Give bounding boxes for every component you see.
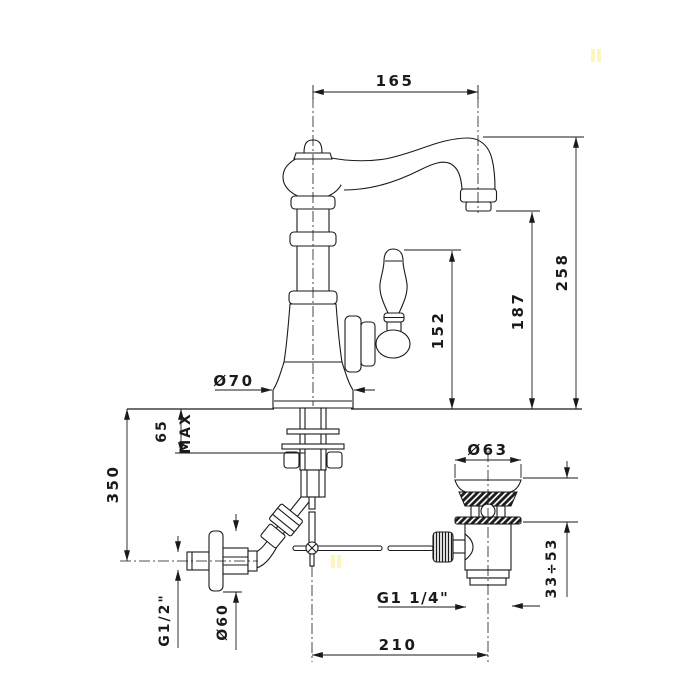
dim-label-258: 258 (553, 253, 571, 292)
dim-label-g114: G1 1/4" (377, 589, 450, 607)
dim-spout-reach: 165 (313, 72, 478, 99)
dim-clamp-range: 33÷53 (523, 461, 578, 598)
dim-label-65: 65 (154, 419, 170, 442)
aerator (461, 189, 497, 211)
dim-label-d70: Ø70 (213, 372, 254, 390)
mounting-hardware (282, 408, 344, 497)
dim-label-350: 350 (104, 465, 122, 504)
mounting-washer (282, 444, 344, 449)
mounting-nut (284, 452, 299, 468)
dim-spout-outlet-height: 187 (496, 211, 540, 409)
dim-label-210: 210 (379, 636, 418, 654)
hose-coupler (301, 470, 325, 497)
technical-drawing: 165 258 187 152 Ø70 65 MAX 350 G1 (0, 0, 700, 700)
dim-waste-offset: 210 (312, 636, 488, 655)
pop-up-rod (293, 497, 433, 566)
handle-ball (376, 330, 410, 358)
dim-label-g12: G1/2" (157, 593, 173, 646)
dim-total-height: 258 (483, 137, 584, 409)
dim-label-d60: Ø60 (215, 603, 231, 640)
dim-label-3353: 33÷53 (544, 538, 560, 599)
dim-label-187: 187 (509, 292, 527, 331)
horizontal-rod (388, 546, 433, 551)
faucet-dimension-diagram: 165 258 187 152 Ø70 65 MAX 350 G1 (0, 0, 700, 700)
pop-up-waste (433, 480, 521, 585)
dim-supply-drop: 350 (104, 409, 127, 561)
mounting-washer (287, 429, 339, 434)
dim-label-max: MAX (178, 412, 194, 454)
dim-label-152: 152 (429, 311, 447, 350)
handle-lever (380, 249, 407, 313)
dim-label-d63: Ø63 (467, 441, 508, 459)
spout (326, 138, 495, 190)
dim-supply-thread: G1/2" (157, 536, 178, 648)
drain-knob (433, 532, 453, 562)
mounting-nut (327, 452, 342, 468)
dim-waste-thread: G1 1/4" (377, 589, 540, 607)
drain-knob-stem (453, 540, 465, 553)
handle-boss (345, 316, 361, 372)
supply-hose (256, 497, 309, 568)
handle (345, 249, 410, 372)
dim-handle-height: 152 (404, 250, 461, 409)
dim-label-165: 165 (376, 72, 415, 90)
